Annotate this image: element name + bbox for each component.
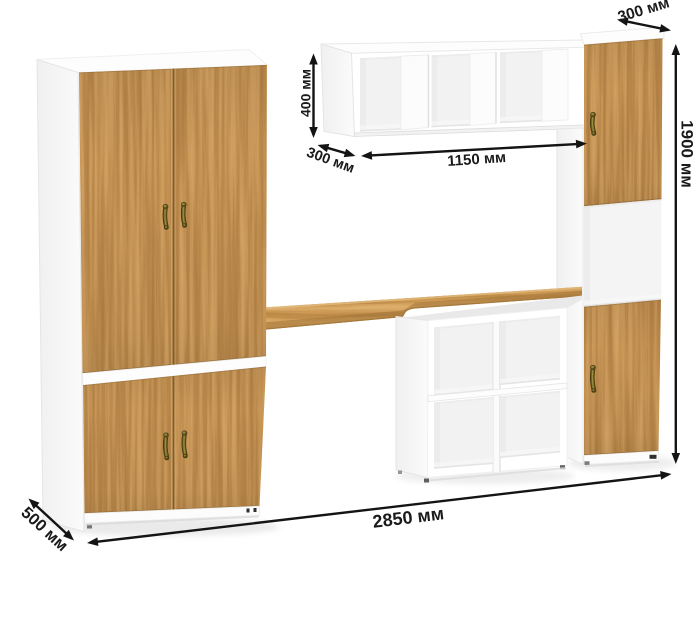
svg-text:1900 мм: 1900 мм — [678, 120, 697, 188]
svg-text:400 мм: 400 мм — [298, 69, 314, 117]
